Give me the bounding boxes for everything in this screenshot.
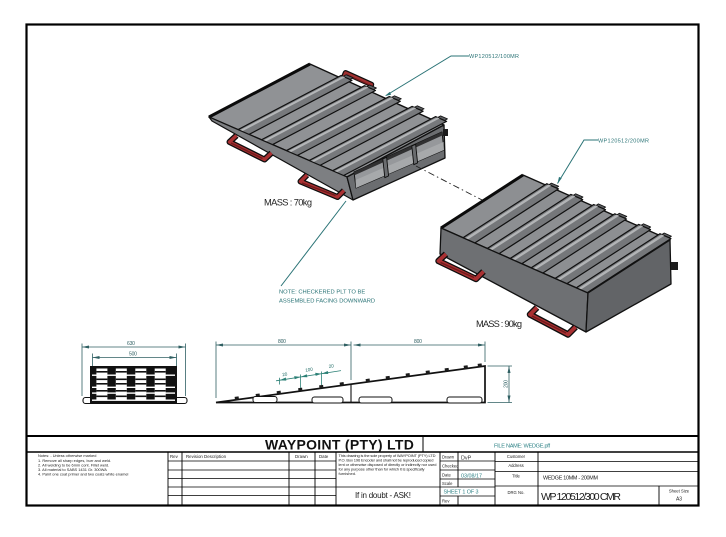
- svg-text:WP 120512/300 CMR: WP 120512/300 CMR: [541, 491, 621, 503]
- svg-text:SHEET 1 OF 3: SHEET 1 OF 3: [444, 490, 479, 496]
- svg-text:MASS : 90kg: MASS : 90kg: [476, 319, 522, 329]
- svg-text:furnished.: furnished.: [339, 471, 357, 476]
- svg-text:03/08/17: 03/08/17: [461, 474, 482, 480]
- svg-text:Rev: Rev: [442, 499, 450, 504]
- svg-text:DRG No.: DRG No.: [508, 490, 525, 495]
- svg-text:Scale: Scale: [442, 481, 453, 486]
- svg-text:WAYPOINT (PTY) LTD: WAYPOINT (PTY) LTD: [265, 437, 415, 453]
- svg-text:MASS : 70kg: MASS : 70kg: [264, 198, 312, 208]
- svg-text:Rev: Rev: [170, 454, 179, 459]
- svg-text:WEDGE 10MM - 200MM: WEDGE 10MM - 200MM: [543, 476, 599, 482]
- svg-text:Customer: Customer: [507, 454, 526, 459]
- svg-text:DvP: DvP: [461, 456, 472, 462]
- svg-text:ASSEMBLED FACING DOWNWARD: ASSEMBLED FACING DOWNWARD: [279, 299, 375, 305]
- svg-text:4. Paint one coat primer and t: 4. Paint one coat primer and two coats w…: [38, 472, 129, 477]
- svg-text:200: 200: [504, 380, 510, 388]
- svg-text:Revision Description: Revision Description: [186, 454, 227, 459]
- svg-text:630: 630: [127, 341, 135, 347]
- svg-text:Address: Address: [508, 463, 523, 468]
- svg-text:Date: Date: [442, 473, 452, 478]
- svg-text:800: 800: [414, 339, 422, 345]
- svg-text:WP120512/200MR: WP120512/200MR: [598, 138, 649, 144]
- svg-text:500: 500: [129, 352, 137, 358]
- svg-text:If in doubt - ASK!: If in doubt - ASK!: [355, 491, 411, 500]
- svg-text:800: 800: [278, 339, 286, 345]
- svg-text:Checked: Checked: [442, 464, 459, 469]
- svg-text:A3: A3: [676, 497, 682, 503]
- svg-text:Sheet Size: Sheet Size: [669, 489, 690, 494]
- svg-text:Drawn: Drawn: [442, 455, 455, 460]
- svg-text:NOTE: CHECKERED PLT TO BE: NOTE: CHECKERED PLT TO BE: [279, 290, 365, 296]
- svg-text:Drawn: Drawn: [295, 454, 308, 459]
- svg-text:WP120512/100MR: WP120512/100MR: [469, 54, 519, 60]
- svg-text:Title: Title: [512, 474, 520, 479]
- svg-text:Date: Date: [319, 454, 329, 459]
- svg-text:FILE NAME: WEDGE.pff: FILE NAME: WEDGE.pff: [494, 444, 550, 450]
